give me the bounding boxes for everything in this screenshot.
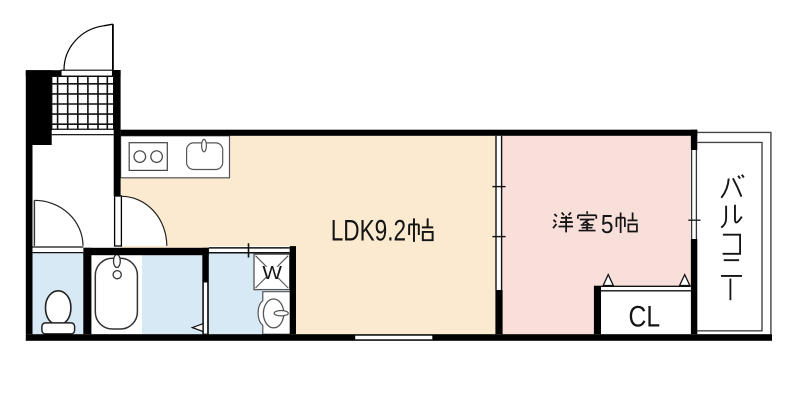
svg-text:CL: CL (629, 300, 661, 333)
svg-text:LDK9.2: LDK9.2 (331, 215, 406, 247)
svg-text:W: W (262, 262, 282, 283)
svg-text:5: 5 (601, 211, 614, 239)
